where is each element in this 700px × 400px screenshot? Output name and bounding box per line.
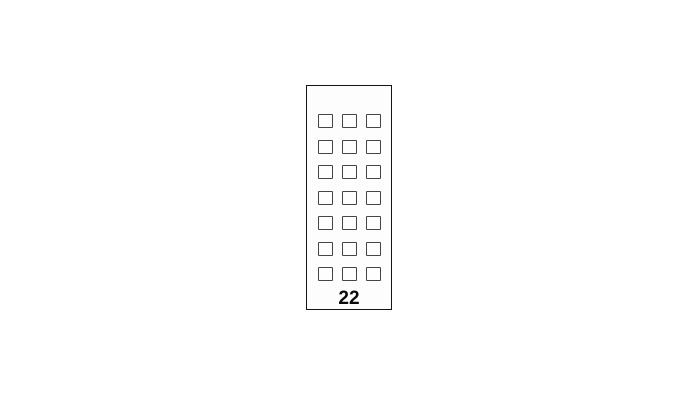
diagram-canvas: 22	[0, 0, 700, 400]
grid-cell	[318, 242, 333, 256]
grid-cell	[366, 140, 381, 154]
grid-cell	[318, 114, 333, 128]
grid-cell	[342, 165, 357, 179]
grid-cell	[318, 267, 333, 281]
grid-cell	[366, 114, 381, 128]
grid-cell	[342, 114, 357, 128]
grid-cell	[366, 242, 381, 256]
grid-cell	[342, 242, 357, 256]
grid-cell	[342, 267, 357, 281]
grid-cell	[318, 216, 333, 230]
cell-grid	[318, 114, 381, 281]
grid-cell	[342, 191, 357, 205]
panel-label: 22	[307, 289, 391, 308]
grid-cell	[366, 216, 381, 230]
grid-cell	[366, 165, 381, 179]
grid-cell	[318, 165, 333, 179]
grid-cell	[342, 140, 357, 154]
grid-cell	[318, 140, 333, 154]
panel-outline: 22	[306, 85, 392, 310]
grid-cell	[366, 191, 381, 205]
grid-cell	[318, 191, 333, 205]
grid-cell	[342, 216, 357, 230]
grid-cell	[366, 267, 381, 281]
